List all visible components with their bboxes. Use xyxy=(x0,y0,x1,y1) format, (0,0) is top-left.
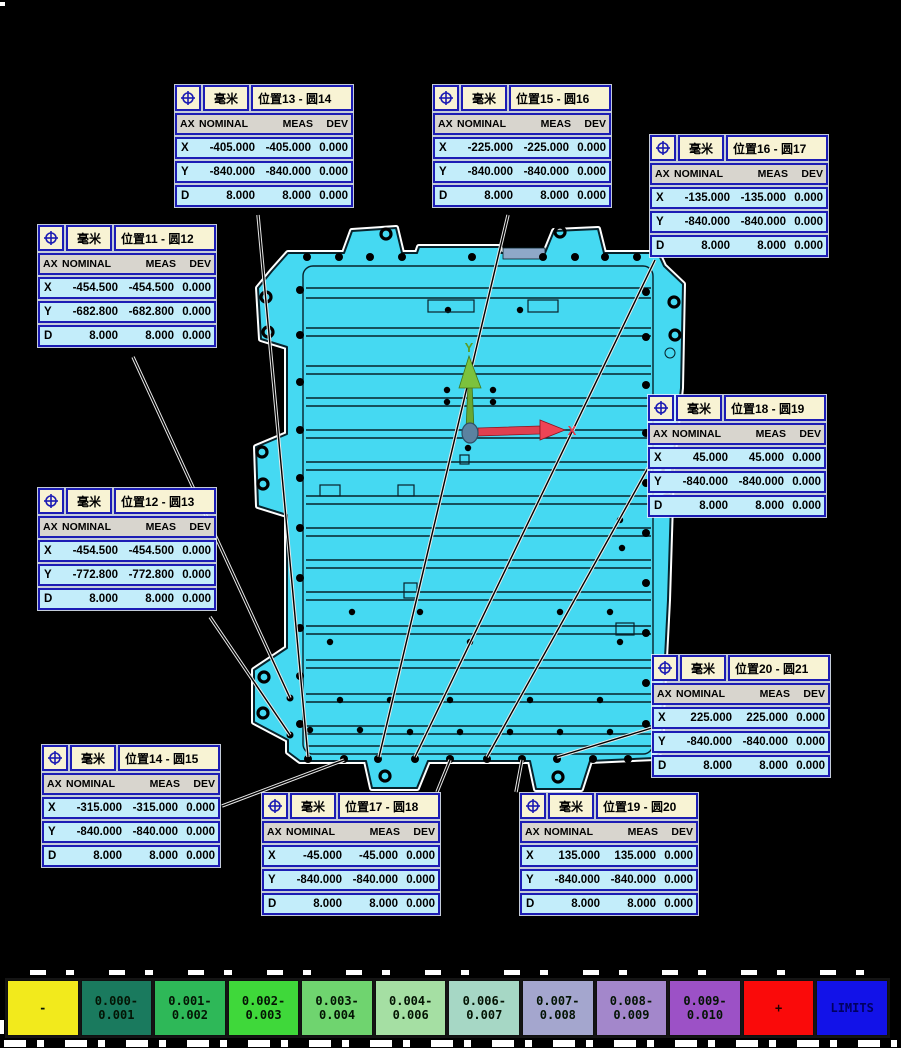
nominal-value: -135.000 xyxy=(672,192,730,204)
y-axis-label: Y xyxy=(465,340,474,355)
callout-title: 位置15 - 圆16 xyxy=(509,85,611,111)
callout-units-label: 毫米 xyxy=(676,395,722,421)
callout-data-row: X -454.500 -454.500 0.000 xyxy=(38,540,216,562)
axis-label: D xyxy=(44,850,64,862)
axis-label: D xyxy=(652,240,672,252)
callout-data-row: Y -840.000 -840.000 0.000 xyxy=(433,161,611,183)
callout-header: 毫米 位置11 - 圆12 xyxy=(38,225,216,251)
nominal-value: 225.000 xyxy=(674,712,732,724)
nominal-value: -405.000 xyxy=(197,142,255,154)
deviation-color-legend: -0.000- 0.0010.001- 0.0020.002- 0.0030.0… xyxy=(5,978,890,1038)
measured-value: 8.000 xyxy=(732,760,788,772)
nominal-value: -315.000 xyxy=(64,802,122,814)
position-crosshair-icon xyxy=(42,745,68,771)
measured-value: -840.000 xyxy=(255,166,311,178)
measured-value: 225.000 xyxy=(732,712,788,724)
measured-value: -135.000 xyxy=(730,192,786,204)
callout-column-headers: AX NOMINAL MEAS DEV xyxy=(262,821,440,843)
deviation-value: 0.000 xyxy=(398,898,438,910)
axis-label: D xyxy=(40,593,60,605)
callout-data-row: Y -840.000 -840.000 0.000 xyxy=(175,161,353,183)
callout-column-headers: AX NOMINAL MEAS DEV xyxy=(42,773,220,795)
measured-value: -682.800 xyxy=(118,306,174,318)
column-header-dev: DEV xyxy=(658,826,696,838)
callout-data-row: D 8.000 8.000 0.000 xyxy=(38,588,216,610)
nominal-value: 8.000 xyxy=(197,190,255,202)
column-header-dev: DEV xyxy=(790,688,828,700)
callout-pos11-circle12[interactable]: 毫米 位置11 - 圆12 AX NOMINAL MEAS DEV X -454… xyxy=(38,225,216,349)
column-header-nominal: NOMINAL xyxy=(672,428,732,440)
nominal-value: 8.000 xyxy=(542,898,600,910)
axis-label: Y xyxy=(40,306,60,318)
nominal-value: -454.500 xyxy=(60,545,118,557)
callout-data-row: Y -772.800 -772.800 0.000 xyxy=(38,564,216,586)
legend-range-cell[interactable]: 0.002- 0.003 xyxy=(228,980,300,1036)
axis-label: D xyxy=(654,760,674,772)
deviation-value: 0.000 xyxy=(174,545,214,557)
deviation-value: 0.000 xyxy=(656,874,696,886)
deviation-value: 0.000 xyxy=(174,282,214,294)
deviation-value: 0.000 xyxy=(311,190,351,202)
nominal-value: -840.000 xyxy=(64,826,122,838)
callout-title: 位置11 - 圆12 xyxy=(114,225,216,251)
axis-label: D xyxy=(177,190,197,202)
callout-data-row: D 8.000 8.000 0.000 xyxy=(38,325,216,347)
x-axis-label: X xyxy=(568,423,577,438)
callout-rows: X -135.000 -135.000 0.000 Y -840.000 -84… xyxy=(650,187,828,257)
legend-range-cell[interactable]: - xyxy=(7,980,79,1036)
column-header-ax: AX xyxy=(40,258,62,270)
column-header-meas: MEAS xyxy=(122,521,176,533)
callout-pos16-circle17[interactable]: 毫米 位置16 - 圆17 AX NOMINAL MEAS DEV X -135… xyxy=(650,135,828,259)
callout-column-headers: AX NOMINAL MEAS DEV xyxy=(175,113,353,135)
axis-label: Y xyxy=(522,874,542,886)
nominal-value: 8.000 xyxy=(60,593,118,605)
axis-label: X xyxy=(264,850,284,862)
callout-header: 毫米 位置17 - 圆18 xyxy=(262,793,440,819)
column-header-ax: AX xyxy=(264,826,286,838)
column-header-dev: DEV xyxy=(400,826,438,838)
position-crosshair-icon xyxy=(262,793,288,819)
nominal-value: -772.800 xyxy=(60,569,118,581)
nominal-value: -225.000 xyxy=(455,142,513,154)
column-header-nominal: NOMINAL xyxy=(674,168,734,180)
callout-data-row: Y -840.000 -840.000 0.000 xyxy=(520,869,698,891)
callout-pos19-circle20[interactable]: 毫米 位置19 - 圆20 AX NOMINAL MEAS DEV X 135.… xyxy=(520,793,698,917)
measured-value: 8.000 xyxy=(730,240,786,252)
deviation-value: 0.000 xyxy=(174,330,214,342)
nominal-value: 45.000 xyxy=(670,452,728,464)
legend-range-cell[interactable]: 0.009- 0.010 xyxy=(669,980,741,1036)
deviation-value: 0.000 xyxy=(656,850,696,862)
callout-data-row: X 45.000 45.000 0.000 xyxy=(648,447,826,469)
callout-title: 位置17 - 圆18 xyxy=(338,793,440,819)
axis-label: D xyxy=(650,500,670,512)
position-crosshair-icon xyxy=(650,135,676,161)
column-header-nominal: NOMINAL xyxy=(544,826,604,838)
axis-label: Y xyxy=(177,166,197,178)
deviation-value: 0.000 xyxy=(569,142,609,154)
nominal-value: 135.000 xyxy=(542,850,600,862)
column-header-meas: MEAS xyxy=(732,428,786,440)
deviation-value: 0.000 xyxy=(311,166,351,178)
measured-value: -840.000 xyxy=(122,826,178,838)
deviation-value: 0.000 xyxy=(784,500,824,512)
column-header-meas: MEAS xyxy=(517,118,571,130)
deviation-value: 0.000 xyxy=(178,850,218,862)
column-header-ax: AX xyxy=(522,826,544,838)
axis-label: X xyxy=(650,452,670,464)
deviation-value: 0.000 xyxy=(398,874,438,886)
deviation-value: 0.000 xyxy=(311,142,351,154)
deviation-value: 0.000 xyxy=(178,802,218,814)
axis-label: D xyxy=(40,330,60,342)
nominal-value: 8.000 xyxy=(60,330,118,342)
nominal-value: -840.000 xyxy=(674,736,732,748)
deviation-value: 0.000 xyxy=(788,736,828,748)
position-crosshair-icon xyxy=(38,225,64,251)
callout-data-row: X -45.000 -45.000 0.000 xyxy=(262,845,440,867)
callout-units-label: 毫米 xyxy=(548,793,594,819)
axis-label: X xyxy=(40,545,60,557)
callout-data-row: X -315.000 -315.000 0.000 xyxy=(42,797,220,819)
measured-value: -840.000 xyxy=(600,874,656,886)
deviation-value: 0.000 xyxy=(784,452,824,464)
axis-label: X xyxy=(44,802,64,814)
clipped-text-fragment-top xyxy=(30,970,878,975)
nominal-value: -840.000 xyxy=(670,476,728,488)
callout-rows: X -405.000 -405.000 0.000 Y -840.000 -84… xyxy=(175,137,353,207)
measured-value: 8.000 xyxy=(342,898,398,910)
legend-range-cell[interactable]: 0.007- 0.008 xyxy=(522,980,594,1036)
measured-value: -840.000 xyxy=(728,476,784,488)
deviation-value: 0.000 xyxy=(786,192,826,204)
callout-title: 位置18 - 圆19 xyxy=(724,395,826,421)
nominal-value: -682.800 xyxy=(60,306,118,318)
column-header-nominal: NOMINAL xyxy=(457,118,517,130)
column-header-ax: AX xyxy=(44,778,66,790)
nominal-value: -454.500 xyxy=(60,282,118,294)
clipped-text-fragment-bottom xyxy=(4,1040,897,1047)
x-axis-shaft xyxy=(478,426,540,436)
callout-pos20-circle21[interactable]: 毫米 位置20 - 圆21 AX NOMINAL MEAS DEV X 225.… xyxy=(652,655,830,779)
measured-value: -315.000 xyxy=(122,802,178,814)
measured-value: 8.000 xyxy=(728,500,784,512)
callout-title: 位置12 - 圆13 xyxy=(114,488,216,514)
axis-label: Y xyxy=(650,476,670,488)
callout-data-row: D 8.000 8.000 0.000 xyxy=(648,495,826,517)
deviation-value: 0.000 xyxy=(569,190,609,202)
callout-data-row: X -225.000 -225.000 0.000 xyxy=(433,137,611,159)
measured-value: 8.000 xyxy=(600,898,656,910)
column-header-dev: DEV xyxy=(571,118,609,130)
nominal-value: -45.000 xyxy=(284,850,342,862)
triad-origin xyxy=(462,423,478,443)
nominal-value: 8.000 xyxy=(455,190,513,202)
part-step-face xyxy=(503,248,545,259)
column-header-meas: MEAS xyxy=(259,118,313,130)
callout-data-row: X 135.000 135.000 0.000 xyxy=(520,845,698,867)
legend-range-cell[interactable]: 0.008- 0.009 xyxy=(596,980,668,1036)
callout-data-row: D 8.000 8.000 0.000 xyxy=(433,185,611,207)
callout-rows: X -315.000 -315.000 0.000 Y -840.000 -84… xyxy=(42,797,220,867)
callout-header: 毫米 位置13 - 圆14 xyxy=(175,85,353,111)
callout-pos13-circle14[interactable]: 毫米 位置13 - 圆14 AX NOMINAL MEAS DEV X -405… xyxy=(175,85,353,209)
axis-label: D xyxy=(435,190,455,202)
callout-rows: X 225.000 225.000 0.000 Y -840.000 -840.… xyxy=(652,707,830,777)
axis-label: X xyxy=(40,282,60,294)
callout-units-label: 毫米 xyxy=(678,135,724,161)
measured-value: -840.000 xyxy=(342,874,398,886)
measured-value: -454.500 xyxy=(118,545,174,557)
column-header-dev: DEV xyxy=(313,118,351,130)
callout-data-row: D 8.000 8.000 0.000 xyxy=(652,755,830,777)
measured-value: -454.500 xyxy=(118,282,174,294)
measured-value: 8.000 xyxy=(118,330,174,342)
callout-units-label: 毫米 xyxy=(203,85,249,111)
axis-label: X xyxy=(522,850,542,862)
column-header-nominal: NOMINAL xyxy=(199,118,259,130)
measured-value: 45.000 xyxy=(728,452,784,464)
column-header-nominal: NOMINAL xyxy=(62,258,122,270)
callout-units-label: 毫米 xyxy=(66,225,112,251)
column-header-ax: AX xyxy=(654,688,676,700)
nominal-value: 8.000 xyxy=(674,760,732,772)
nominal-value: -840.000 xyxy=(197,166,255,178)
callout-column-headers: AX NOMINAL MEAS DEV xyxy=(38,516,216,538)
callout-rows: X -454.500 -454.500 0.000 Y -772.800 -77… xyxy=(38,540,216,610)
callout-pos17-circle18[interactable]: 毫米 位置17 - 圆18 AX NOMINAL MEAS DEV X -45.… xyxy=(262,793,440,917)
callout-data-row: Y -840.000 -840.000 0.000 xyxy=(648,471,826,493)
deviation-value: 0.000 xyxy=(398,850,438,862)
callout-column-headers: AX NOMINAL MEAS DEV xyxy=(650,163,828,185)
position-crosshair-icon xyxy=(648,395,674,421)
callout-title: 位置13 - 圆14 xyxy=(251,85,353,111)
column-header-dev: DEV xyxy=(786,428,824,440)
column-header-dev: DEV xyxy=(176,258,214,270)
measured-value: -840.000 xyxy=(732,736,788,748)
callout-title: 位置20 - 圆21 xyxy=(728,655,830,681)
axis-label: X xyxy=(177,142,197,154)
deviation-value: 0.000 xyxy=(174,306,214,318)
position-crosshair-icon xyxy=(38,488,64,514)
callout-data-row: Y -682.800 -682.800 0.000 xyxy=(38,301,216,323)
column-header-nominal: NOMINAL xyxy=(676,688,736,700)
column-header-nominal: NOMINAL xyxy=(286,826,346,838)
callout-data-row: D 8.000 8.000 0.000 xyxy=(262,893,440,915)
callout-units-label: 毫米 xyxy=(290,793,336,819)
axis-label: Y xyxy=(652,216,672,228)
callout-column-headers: AX NOMINAL MEAS DEV xyxy=(433,113,611,135)
measured-value: -840.000 xyxy=(730,216,786,228)
column-header-ax: AX xyxy=(177,118,199,130)
column-header-ax: AX xyxy=(650,428,672,440)
callout-rows: X 45.000 45.000 0.000 Y -840.000 -840.00… xyxy=(648,447,826,517)
callout-data-row: X -135.000 -135.000 0.000 xyxy=(650,187,828,209)
axis-label: Y xyxy=(44,826,64,838)
callout-header: 毫米 位置12 - 圆13 xyxy=(38,488,216,514)
callout-data-row: Y -840.000 -840.000 0.000 xyxy=(42,821,220,843)
axis-label: D xyxy=(264,898,284,910)
deviation-value: 0.000 xyxy=(174,569,214,581)
deviation-value: 0.000 xyxy=(178,826,218,838)
axis-label: Y xyxy=(264,874,284,886)
measured-value: -405.000 xyxy=(255,142,311,154)
callout-header: 毫米 位置16 - 圆17 xyxy=(650,135,828,161)
axis-label: X xyxy=(652,192,672,204)
callout-data-row: D 8.000 8.000 0.000 xyxy=(520,893,698,915)
callout-data-row: D 8.000 8.000 0.000 xyxy=(175,185,353,207)
callout-column-headers: AX NOMINAL MEAS DEV xyxy=(38,253,216,275)
callout-units-label: 毫米 xyxy=(70,745,116,771)
column-header-meas: MEAS xyxy=(126,778,180,790)
measured-value: 8.000 xyxy=(122,850,178,862)
nominal-value: -840.000 xyxy=(542,874,600,886)
column-header-ax: AX xyxy=(40,521,62,533)
callout-pos14-circle15[interactable]: 毫米 位置14 - 圆15 AX NOMINAL MEAS DEV X -315… xyxy=(42,745,220,869)
nominal-value: 8.000 xyxy=(670,500,728,512)
column-header-dev: DEV xyxy=(176,521,214,533)
axis-label: X xyxy=(654,712,674,724)
callout-header: 毫米 位置14 - 圆15 xyxy=(42,745,220,771)
callout-column-headers: AX NOMINAL MEAS DEV xyxy=(520,821,698,843)
legend-range-cell[interactable]: LIMITS xyxy=(816,980,888,1036)
axis-label: D xyxy=(522,898,542,910)
callout-title: 位置14 - 圆15 xyxy=(118,745,220,771)
nominal-value: -840.000 xyxy=(455,166,513,178)
column-header-dev: DEV xyxy=(788,168,826,180)
callout-pos18-circle19[interactable]: 毫米 位置18 - 圆19 AX NOMINAL MEAS DEV X 45.0… xyxy=(648,395,826,519)
position-crosshair-icon xyxy=(175,85,201,111)
deviation-value: 0.000 xyxy=(569,166,609,178)
measured-value: -45.000 xyxy=(342,850,398,862)
column-header-meas: MEAS xyxy=(604,826,658,838)
callout-rows: X 135.000 135.000 0.000 Y -840.000 -840.… xyxy=(520,845,698,915)
legend-range-cell[interactable]: 0.004- 0.006 xyxy=(375,980,447,1036)
column-header-ax: AX xyxy=(435,118,457,130)
position-crosshair-icon xyxy=(652,655,678,681)
measured-value: 8.000 xyxy=(255,190,311,202)
nominal-value: -840.000 xyxy=(284,874,342,886)
nominal-value: 8.000 xyxy=(64,850,122,862)
callout-data-row: X -454.500 -454.500 0.000 xyxy=(38,277,216,299)
legend-range-cell[interactable]: 0.006- 0.007 xyxy=(448,980,520,1036)
deviation-value: 0.000 xyxy=(656,898,696,910)
column-header-meas: MEAS xyxy=(736,688,790,700)
deviation-value: 0.000 xyxy=(788,712,828,724)
deviation-value: 0.000 xyxy=(784,476,824,488)
measured-value: 8.000 xyxy=(118,593,174,605)
callout-units-label: 毫米 xyxy=(461,85,507,111)
legend-range-cell[interactable]: 0.001- 0.002 xyxy=(154,980,226,1036)
deviation-value: 0.000 xyxy=(788,760,828,772)
callout-data-row: D 8.000 8.000 0.000 xyxy=(42,845,220,867)
axis-label: X xyxy=(435,142,455,154)
measured-value: 135.000 xyxy=(600,850,656,862)
measured-value: -772.800 xyxy=(118,569,174,581)
callout-column-headers: AX NOMINAL MEAS DEV xyxy=(648,423,826,445)
nominal-value: -840.000 xyxy=(672,216,730,228)
callout-units-label: 毫米 xyxy=(680,655,726,681)
deviation-value: 0.000 xyxy=(786,216,826,228)
callout-rows: X -45.000 -45.000 0.000 Y -840.000 -840.… xyxy=(262,845,440,915)
measured-value: -225.000 xyxy=(513,142,569,154)
callout-header: 毫米 位置18 - 圆19 xyxy=(648,395,826,421)
callout-pos12-circle13[interactable]: 毫米 位置12 - 圆13 AX NOMINAL MEAS DEV X -454… xyxy=(38,488,216,612)
column-header-meas: MEAS xyxy=(346,826,400,838)
axis-label: Y xyxy=(654,736,674,748)
callout-data-row: Y -840.000 -840.000 0.000 xyxy=(262,869,440,891)
callout-title: 位置19 - 圆20 xyxy=(596,793,698,819)
legend-range-cell[interactable]: 0.000- 0.001 xyxy=(81,980,153,1036)
column-header-ax: AX xyxy=(652,168,674,180)
position-crosshair-icon xyxy=(433,85,459,111)
callout-rows: X -225.000 -225.000 0.000 Y -840.000 -84… xyxy=(433,137,611,207)
measured-value: -840.000 xyxy=(513,166,569,178)
callout-header: 毫米 位置19 - 圆20 xyxy=(520,793,698,819)
column-header-nominal: NOMINAL xyxy=(66,778,126,790)
deviation-value: 0.000 xyxy=(786,240,826,252)
clipped-fragment-left xyxy=(0,1020,4,1034)
callout-title: 位置16 - 圆17 xyxy=(726,135,828,161)
callout-header: 毫米 位置20 - 圆21 xyxy=(652,655,830,681)
axis-label: Y xyxy=(40,569,60,581)
column-header-nominal: NOMINAL xyxy=(62,521,122,533)
callout-units-label: 毫米 xyxy=(66,488,112,514)
column-header-dev: DEV xyxy=(180,778,218,790)
axis-label: Y xyxy=(435,166,455,178)
measured-value: 8.000 xyxy=(513,190,569,202)
legend-range-cell[interactable]: + xyxy=(743,980,815,1036)
cmm-report-view: Y X 毫米 位置13 - 圆14 AX NOMINAL MEAS DEV X … xyxy=(0,0,901,1048)
deviation-value: 0.000 xyxy=(174,593,214,605)
callout-data-row: Y -840.000 -840.000 0.000 xyxy=(650,211,828,233)
callout-data-row: Y -840.000 -840.000 0.000 xyxy=(652,731,830,753)
callout-data-row: X -405.000 -405.000 0.000 xyxy=(175,137,353,159)
legend-range-cell[interactable]: 0.003- 0.004 xyxy=(301,980,373,1036)
callout-rows: X -454.500 -454.500 0.000 Y -682.800 -68… xyxy=(38,277,216,347)
column-header-meas: MEAS xyxy=(734,168,788,180)
nominal-value: 8.000 xyxy=(284,898,342,910)
position-crosshair-icon xyxy=(520,793,546,819)
callout-header: 毫米 位置15 - 圆16 xyxy=(433,85,611,111)
callout-data-row: X 225.000 225.000 0.000 xyxy=(652,707,830,729)
column-header-meas: MEAS xyxy=(122,258,176,270)
callout-pos15-circle16[interactable]: 毫米 位置15 - 圆16 AX NOMINAL MEAS DEV X -225… xyxy=(433,85,611,209)
callout-data-row: D 8.000 8.000 0.000 xyxy=(650,235,828,257)
nominal-value: 8.000 xyxy=(672,240,730,252)
callout-column-headers: AX NOMINAL MEAS DEV xyxy=(652,683,830,705)
